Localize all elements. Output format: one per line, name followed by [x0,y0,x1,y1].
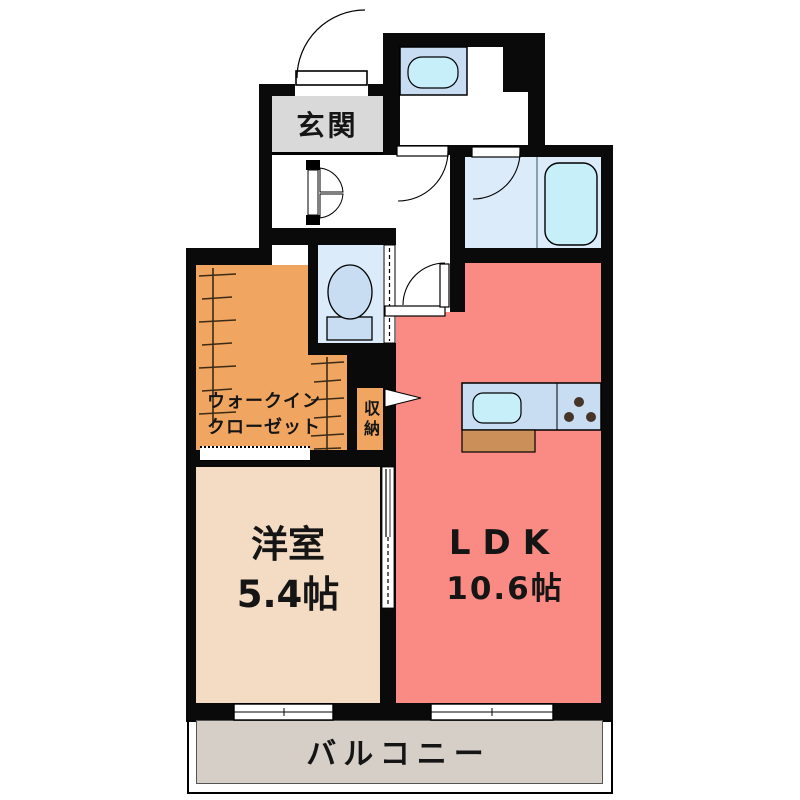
storage-label: 収納 [356,390,384,450]
shoe-cabinet-doors-icon [306,160,343,225]
entrance-door-icon [296,10,367,85]
fixture-layer [0,0,800,800]
wic-label: ウォークイン クローゼット [196,388,332,442]
toilet-door-icon [384,245,395,343]
wic-label-line1: ウォークイン [207,389,321,415]
genkan-label: 玄関 [272,96,383,152]
bedroom-label: 洋室 5.4帖 [196,515,380,625]
balcony-window-icon [234,704,553,720]
bathtub-icon [537,157,597,248]
sliding-door-icon [382,467,394,608]
kitchen-counter-icon [462,383,601,452]
balcony-label: バルコニー [196,729,601,773]
counter-brown [462,430,535,452]
ldk-name: LDK [449,523,561,563]
wic-label-line2: クローゼット [207,415,321,441]
floor-plan: 玄関 ウォークイン クローゼット 収納 洋室 5.4帖 LDK 10.6帖 バル… [0,0,800,800]
ldk-label: LDK 10.6帖 [415,515,595,615]
washbasin-icon [400,47,467,95]
bedroom-name: 洋室 [251,520,325,570]
bedroom-size: 5.4帖 [237,570,340,620]
storage-arrow-icon [385,389,421,407]
washroom-door-icon [397,146,448,201]
bathroom-door-icon [472,147,520,199]
toilet-icon [327,265,372,340]
ldk-size: 10.6帖 [446,563,564,608]
